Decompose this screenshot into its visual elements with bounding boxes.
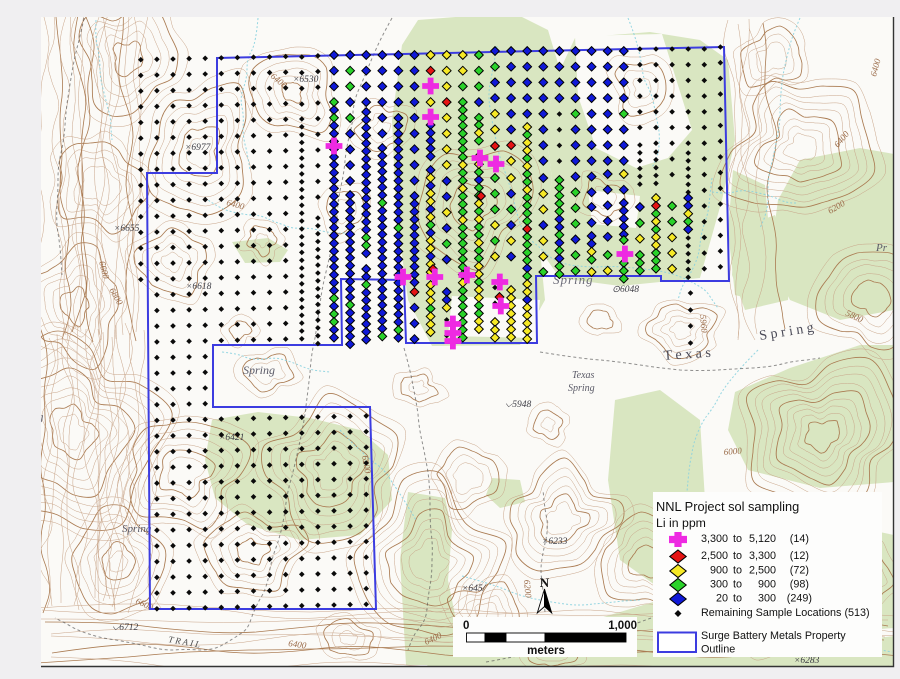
svg-text:Surge Battery Metals Property: Surge Battery Metals Property <box>701 630 846 642</box>
svg-text:Remaining Sample Locations (51: Remaining Sample Locations (513) <box>701 607 870 619</box>
svg-text:6200: 6200 <box>522 579 534 598</box>
svg-text:2,500to3,300(12): 2,500to3,300(12) <box>701 550 809 562</box>
svg-text:×645/: ×645/ <box>462 584 487 594</box>
svg-text:×6655: ×6655 <box>114 224 140 234</box>
svg-text:Spring: Spring <box>243 363 275 377</box>
svg-text:×6233: ×6233 <box>542 537 568 547</box>
svg-text:5960: 5960 <box>698 314 710 333</box>
svg-text:⌵6712: ⌵6712 <box>112 623 138 633</box>
svg-text:Spring: Spring <box>568 383 595 394</box>
svg-text:Pr: Pr <box>875 242 888 254</box>
svg-text:6000: 6000 <box>723 445 742 457</box>
svg-text:300to900(98): 300to900(98) <box>710 579 809 591</box>
svg-text:Outline: Outline <box>701 644 735 656</box>
svg-text:×6618: ×6618 <box>186 282 212 292</box>
svg-text:NNL Project sol sampling: NNL Project sol sampling <box>656 499 799 514</box>
svg-text:×6283: ×6283 <box>794 656 820 666</box>
svg-text:1,000: 1,000 <box>608 620 637 632</box>
svg-text:Texas: Texas <box>572 370 595 381</box>
svg-text:900to2,500(72): 900to2,500(72) <box>710 565 809 577</box>
svg-text:N: N <box>540 575 550 590</box>
svg-text:Li in ppm: Li in ppm <box>656 516 706 530</box>
svg-text:meters: meters <box>527 645 565 657</box>
svg-text:×6530: ×6530 <box>293 75 319 85</box>
svg-text:0: 0 <box>463 620 469 632</box>
svg-text:3,300to5,120(14): 3,300to5,120(14) <box>701 533 809 545</box>
svg-text:⌵5948: ⌵5948 <box>505 400 531 410</box>
svg-text:⊙6048: ⊙6048 <box>612 285 639 295</box>
svg-text:Spring: Spring <box>122 523 152 535</box>
